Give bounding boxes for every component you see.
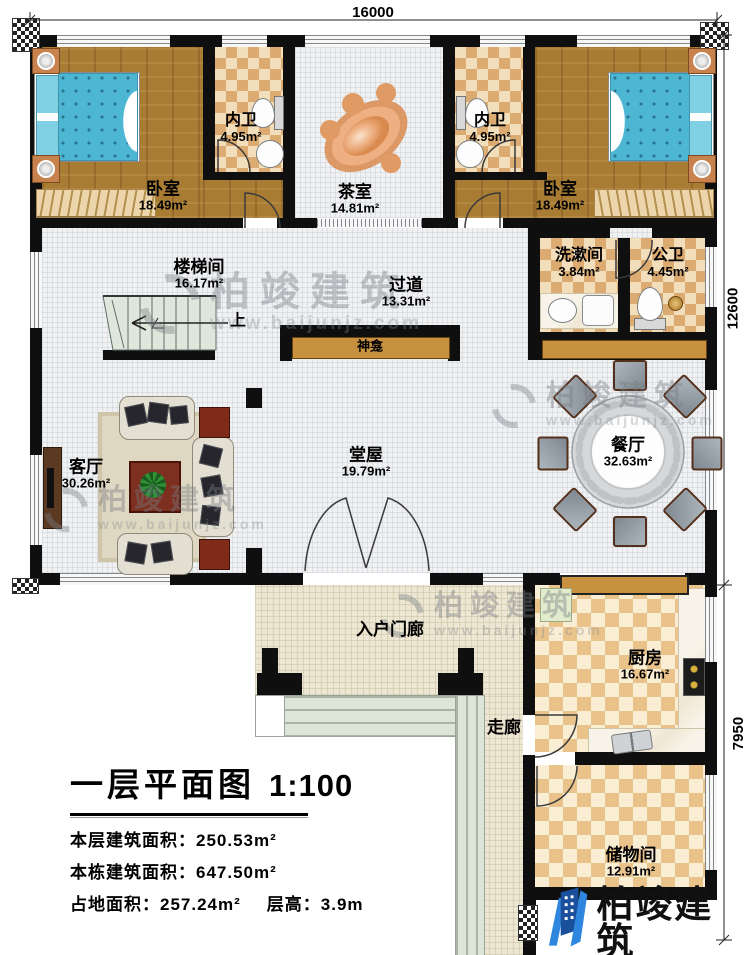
label-storage: 储物间12.91m² (606, 846, 657, 877)
label-dining-room: 餐厅32.63m² (604, 436, 652, 467)
tv (47, 468, 54, 508)
dim-right-lower: 7950 (730, 717, 747, 750)
porch-stub-right (437, 573, 483, 585)
side-table-top (199, 407, 230, 438)
dining-chair (613, 516, 647, 547)
sofa-right (192, 437, 234, 537)
label-bedroom-right: 卧室18.49m² (536, 180, 584, 211)
wall-bottom-upper-5 (685, 573, 717, 585)
label-living-room: 客厅30.26m² (62, 458, 110, 489)
brand-logo: 柏竣建筑 www.baijunjz.com (543, 886, 750, 955)
plan-title: 一层平面图 (70, 758, 255, 806)
shrine-stub-left (280, 325, 292, 361)
label-shrine: 神龛 (357, 339, 383, 356)
column-living-top (246, 388, 262, 408)
wall-bedroomL-ensuiteL (203, 47, 215, 172)
wall-row1-bottom-right (503, 218, 717, 228)
dining-chair (538, 437, 569, 471)
dining-sideboard (542, 340, 707, 359)
kitchen-fridge (540, 588, 572, 622)
kitchen-stove (683, 658, 705, 696)
dim-top: 16000 (352, 4, 394, 21)
title-underline (70, 813, 308, 816)
label-public-bath: 公卫4.45m² (647, 248, 688, 278)
wall-wash-top-2 (652, 228, 717, 238)
hatch-corridor-end (518, 905, 538, 941)
wall-under-stairs (103, 350, 215, 360)
label-kitchen: 厨房16.67m² (621, 649, 669, 680)
window-tea (305, 35, 430, 47)
plan-scale: 1:100 (269, 768, 353, 804)
wall-ensuiteR-bedroomR (523, 47, 535, 172)
sink-ensuite-right (456, 140, 484, 168)
label-corridor: 走廊 (487, 719, 521, 737)
bed-right-pillows (688, 75, 712, 159)
label-bedroom-left: 卧室18.49m² (139, 180, 187, 211)
window-bath-right (705, 247, 717, 307)
wall-kitchen-storage (575, 752, 705, 765)
label-main-hall: 堂屋19.79m² (342, 446, 390, 477)
bed-left-duvet (58, 73, 138, 161)
wall-wash-top-1 (528, 228, 610, 238)
window-hall-sidelight (483, 573, 523, 585)
title-underline-2 (70, 817, 308, 818)
label-tea-room: 茶室14.81m² (331, 183, 379, 214)
porch-steps (284, 695, 457, 737)
porch-column-left-b (257, 673, 302, 695)
bedroom-left-vestibule-floor (203, 180, 295, 218)
dining-kitchen-counter (560, 575, 689, 595)
wall-ensuiteR-bottom (455, 172, 547, 180)
washroom-basin (548, 298, 577, 323)
side-table-bottom (199, 539, 230, 570)
wall-ensuiteL-tea (283, 35, 295, 220)
coffee-table-plant (140, 472, 166, 498)
tea-stub-right (422, 218, 458, 228)
porch-column-right-b (438, 673, 483, 695)
window-bedroomR (577, 35, 690, 47)
window-ensuiteR (480, 35, 525, 47)
sink-ensuite-left (256, 140, 284, 168)
footprint-line: 占地面积：257.24m²层高：3.9m (70, 890, 364, 915)
window-storage-right (705, 775, 717, 870)
floor-area-line: 本层建筑面积：250.53m² (70, 826, 364, 851)
wall-tea-ensuiteR (443, 35, 455, 220)
tea-stub-left (277, 218, 317, 228)
hatch-top-left (12, 18, 40, 52)
bed-right-duvet (610, 73, 690, 161)
window-ensuiteL (222, 35, 267, 47)
bed-left-pillows (36, 75, 60, 159)
nightstand-left-bottom (32, 155, 60, 183)
label-washroom: 洗漱间3.84m² (555, 248, 603, 278)
brand-logo-icon (543, 886, 588, 948)
label-stairs-up: 上 (230, 314, 246, 331)
label-ensuite-right: 内卫4.95m² (469, 113, 510, 143)
tea-sliding-door (317, 219, 422, 227)
window-living-left (30, 455, 42, 545)
label-hallway: 过道13.31m² (382, 276, 430, 307)
washroom-machine (582, 295, 614, 326)
brand-name: 柏竣建筑 (596, 886, 750, 955)
corridor-steps (455, 695, 485, 955)
shrine-wall (280, 325, 460, 337)
label-stairwell: 楼梯间16.17m² (174, 258, 225, 289)
wardrobe-right (594, 189, 714, 218)
porch-stub-left (257, 573, 303, 585)
sofa-bottom (117, 533, 193, 575)
window-stairwell (30, 252, 42, 328)
dining-chair (692, 437, 723, 471)
nightstand-right-top (688, 48, 716, 74)
wall-bottom-upper-4 (523, 573, 560, 585)
label-entry-porch: 入户门廊 (356, 621, 424, 639)
floor-plan: 16000 12600 7950 卧室18.49m² 内卫4.95m² 茶室14… (0, 0, 750, 955)
bedroom-right-vestibule-floor (455, 180, 535, 218)
porch-step-corner (255, 695, 285, 737)
window-kitchen-right (705, 597, 717, 662)
building-area-line: 本栋建筑面积：647.50m² (70, 858, 364, 883)
window-bedroomL (57, 35, 170, 47)
dining-chair (613, 360, 647, 391)
nightstand-left-top (32, 48, 60, 74)
wall-kitchen-left-2 (523, 755, 535, 900)
toilet-tank-ensuite-left (274, 96, 284, 130)
column-living-bottom (246, 548, 262, 573)
nightstand-right-bottom (688, 155, 716, 183)
shower-public-bath (668, 296, 683, 311)
hatch-bottom-left (12, 578, 39, 594)
wall-row1-bottom-left (30, 218, 243, 228)
label-ensuite-left: 内卫4.95m² (220, 113, 261, 143)
sofa-top (119, 396, 195, 440)
wall-kitchen-left-1 (523, 585, 535, 715)
wall-ensuiteL-bottom (203, 172, 295, 180)
dim-right-upper: 12600 (724, 288, 741, 330)
title-block: 一层平面图1:100 本层建筑面积：250.53m² 本栋建筑面积：647.50… (70, 758, 364, 922)
wall-wash-left (528, 228, 540, 332)
toilet-public-bath (637, 287, 663, 321)
hatch-top-right (700, 22, 729, 50)
wall-wash-divider (618, 238, 630, 332)
